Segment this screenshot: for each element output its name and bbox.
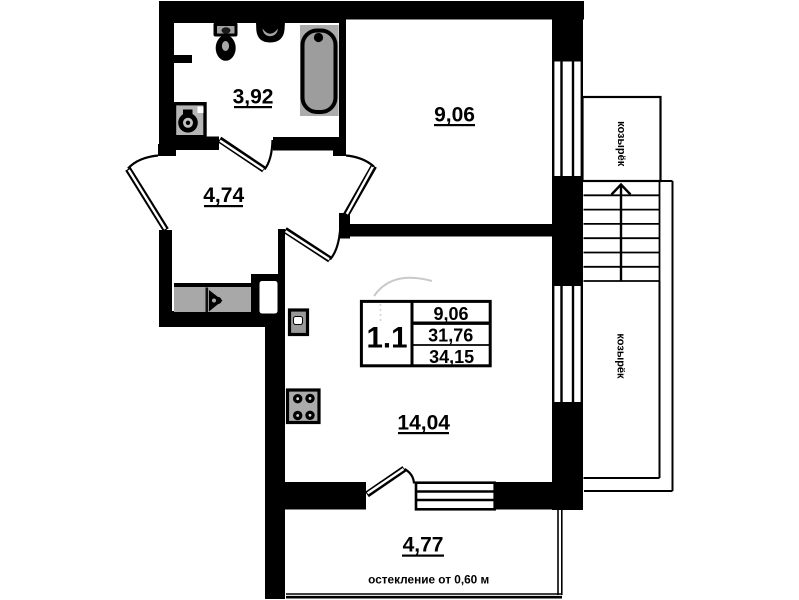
svg-text:14,04: 14,04 xyxy=(397,412,450,435)
svg-text:34,15: 34,15 xyxy=(429,347,474,367)
svg-text:31,76: 31,76 xyxy=(428,325,473,345)
svg-text:1.1: 1.1 xyxy=(366,322,407,355)
svg-text:3,92: 3,92 xyxy=(233,86,274,109)
svg-text:козырёк: козырёк xyxy=(615,121,627,167)
svg-text:4,77: 4,77 xyxy=(403,534,444,557)
svg-text:9,06: 9,06 xyxy=(434,104,475,127)
svg-text:4,74: 4,74 xyxy=(203,184,244,207)
svg-text:9,06: 9,06 xyxy=(433,304,468,324)
svg-text:остекление от 0,60 м: остекление от 0,60 м xyxy=(368,573,489,587)
svg-text:козырёк: козырёк xyxy=(615,333,627,379)
